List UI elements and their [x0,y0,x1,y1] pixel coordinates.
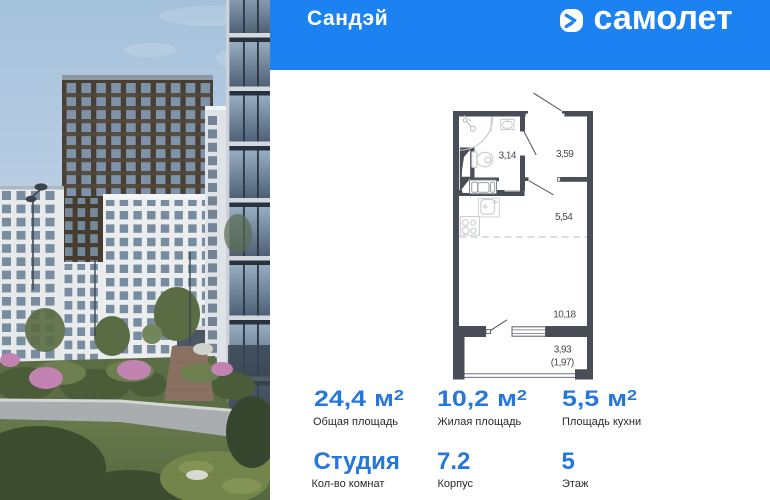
svg-text:3,14: 3,14 [499,150,517,161]
svg-text:3,93: 3,93 [554,344,572,355]
svg-text:3,59: 3,59 [556,149,574,160]
svg-text:5,54: 5,54 [555,212,573,223]
svg-text:(1,97): (1,97) [551,358,574,369]
svg-text:10,18: 10,18 [553,309,576,320]
